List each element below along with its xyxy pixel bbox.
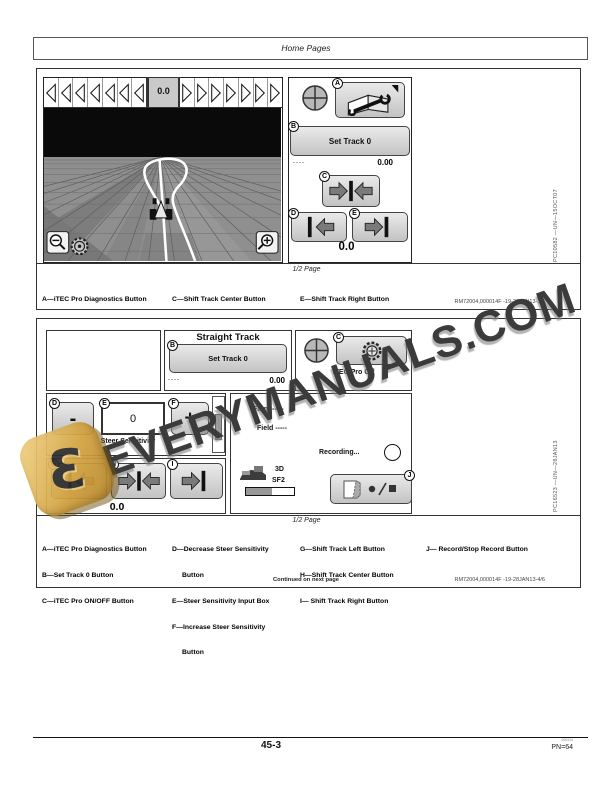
figure2-caption-col2: D—Decrease Steer Sensitivity Button E—St… [172,529,269,675]
shift-left-icon [302,215,336,239]
left-arrow-icon [88,78,103,107]
gear-icon [72,238,88,254]
record-stop-record-button[interactable]: J [330,474,412,504]
shift-right-icon [180,469,214,493]
recording-label: Recording... [319,449,359,456]
left-arrow-icon [118,78,133,107]
figure2-blank-panel [46,330,161,391]
stylized-e-arrow-icon: Ɛ [45,436,89,503]
caption-line: E—Shift Track Right Button [300,296,389,305]
track-dashes: ---- [168,377,180,383]
page-number: 45-3 [246,740,296,751]
figure2-reference: RM72004,000014F -19-28JAN13-4/6 [454,577,545,583]
right-arrow-icon [254,78,269,107]
left-arrow-icon [73,78,88,107]
callout-b: B [288,121,299,132]
figure2-caption-rule [36,515,581,516]
figure1-control-panel: A B Set Track 0 ---- 0.00 C D [288,77,412,263]
callout-c: C [333,332,344,343]
set-track-0-label: Set Track 0 [208,354,248,363]
figure2-photo-id: PC16523 —UN—28JAN13 [553,406,559,512]
steer-sensitivity-value: 0 [130,413,136,425]
callout-b: B [167,340,178,351]
vehicle-icon [239,464,269,484]
record-circle-icon [384,444,401,461]
shift-track-right-button[interactable]: I [170,463,223,499]
field-3d-view [44,108,281,261]
right-arrow-icon [195,78,210,107]
shift-track-right-button[interactable]: E [352,212,408,242]
offset-value: 0.00 [377,158,393,167]
shift-track-left-button[interactable]: D [291,212,347,242]
map-mode-label: 3D [275,466,284,473]
caption-line: D—Decrease Steer Sensitivity [172,546,269,555]
callout-e: E [349,208,360,219]
track-offset-display: 0.0 [147,78,180,107]
crosshair-icon [301,84,329,112]
right-arrow-icon [239,78,254,107]
left-arrow-icon [59,78,74,107]
right-arrow-icon [209,78,224,107]
shift-track-center-button[interactable]: C [322,175,380,207]
footer-rule [33,737,588,738]
track-dashes: ---- [293,160,305,166]
shift-right-icon [363,215,397,239]
caption-line: E—Steer Sensitivity Input Box [172,598,269,607]
callout-e: E [99,398,110,409]
set-track-0-label: Set Track 0 [329,137,371,146]
lightbar: 0.0 [44,78,282,108]
caption-line: B—Set Track 0 Button [42,572,147,581]
right-arrow-icon [224,78,239,107]
figure1-size-note: 1/2 Page [33,266,580,273]
callout-a: A [332,78,343,89]
caption-line: J— Record/Stop Record Button [426,546,528,555]
signal-strength-bar [245,487,295,496]
right-arrow-icon [180,78,195,107]
figure1-caption-rule [36,263,581,264]
callout-j: J [404,470,415,481]
caption-line: C—iTEC Pro ON/OFF Button [42,598,147,607]
diagnostics-book-wrench-icon [339,84,401,116]
figure2-caption-col4: J— Record/Stop Record Button [426,529,528,572]
caption-line: F—Increase Steer Sensitivity [172,624,269,633]
left-arrow-icon [44,78,59,107]
callout-d: D [288,208,299,219]
field-record-icon [341,478,401,500]
callout-f: F [168,398,179,409]
print-code: 090314 [561,738,573,742]
caption-line: G—Shift Track Left Button [300,546,394,555]
figure1-guidance-view: 0.0 [43,77,283,263]
shift-center-icon [328,179,374,203]
caption-line: A—iTEC Pro Diagnostics Button [42,296,147,305]
signal-type-label: SF2 [272,477,285,484]
figure1-photo-id: PC10582 —UN—15OCT07 [553,148,559,262]
left-arrow-icon [132,78,147,107]
cross-track-error-value: 0.0 [289,241,404,253]
magnifier-minus-icon [47,232,69,254]
manual-page: Home Pages 0.0 [0,0,612,792]
caption-line: C—Shift Track Center Button [172,296,266,305]
caption-line: I— Shift Track Right Button [300,598,394,607]
magnifier-plus-icon [256,232,278,254]
callout-c: C [319,171,330,182]
figure2-size-note: 1/2 Page [33,517,580,524]
continued-note: Continued on next page [196,577,416,583]
track-mode-title: Straight Track [165,332,291,343]
page-title: Home Pages [0,43,612,53]
set-track-0-button[interactable]: B Set Track 0 [169,344,287,373]
figure2-caption-col1: A—iTEC Pro Diagnostics Button B—Set Trac… [42,529,147,624]
itec-pro-diagnostics-button[interactable]: A [335,82,405,118]
figure1-caption-col3: E—Shift Track Right Button [300,279,389,322]
caption-line: Button [172,649,269,658]
set-track-0-button[interactable]: B Set Track 0 [290,126,410,156]
callout-d: D [49,398,60,409]
right-arrow-icon [268,78,282,107]
signal-strength-fill [246,488,272,495]
caption-line: A—iTEC Pro Diagnostics Button [42,546,147,555]
left-arrow-icon [103,78,118,107]
pn-number: PN=64 [551,744,573,751]
